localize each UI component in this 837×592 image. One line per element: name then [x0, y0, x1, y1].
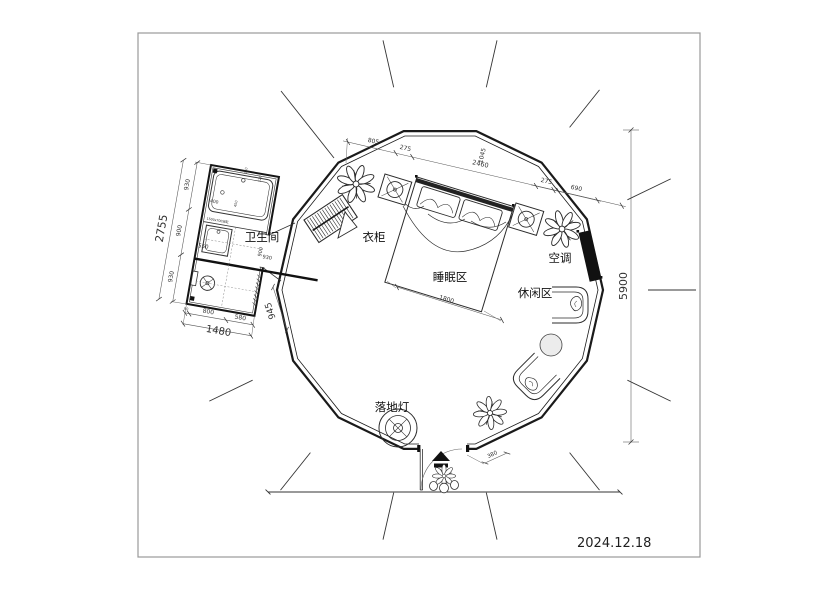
label-sleeping-area: 睡眠区 [433, 270, 468, 284]
floor-plan-page: 1500x700浴缸 [0, 0, 837, 592]
dim-tent-height: 5900 [617, 272, 630, 300]
lounge-chair-top [552, 287, 588, 323]
date-stamp: 2024.12.18 [577, 536, 651, 551]
label-air-conditioner: 空调 [549, 251, 572, 265]
coffee-table [540, 334, 562, 356]
label-bathroom: 卫生间 [245, 230, 280, 244]
wall-post [190, 296, 195, 301]
door-post-right [466, 445, 469, 452]
wall-post [213, 168, 218, 173]
floor-plan-svg: 1500x700浴缸 [0, 0, 837, 592]
label-floor-lamp: 落地灯 [375, 400, 410, 414]
sink [202, 225, 232, 256]
dim-seg: 90 [184, 307, 189, 312]
label-wardrobe: 衣柜 [363, 230, 386, 244]
label-lounge-area: 休闲区 [518, 286, 553, 300]
